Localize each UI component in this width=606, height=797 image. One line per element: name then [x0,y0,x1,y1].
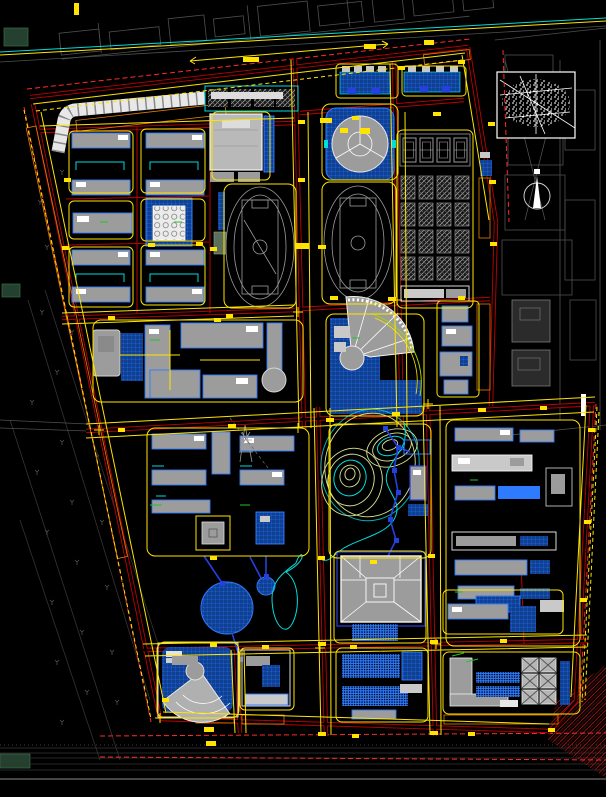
gymnasium-round-hall [324,108,396,180]
green-panel [4,28,28,46]
site-plan-drawing [0,0,606,797]
green-panel [0,754,30,768]
plaza-grid [352,624,398,641]
blue-slab [498,486,540,499]
green-panel [2,284,20,297]
blue-strip-building [264,116,274,172]
location-inset-map [497,72,575,138]
lecture-hall-circle-grid [146,198,192,246]
round-annex [262,368,286,392]
cad-canvas [0,0,606,797]
